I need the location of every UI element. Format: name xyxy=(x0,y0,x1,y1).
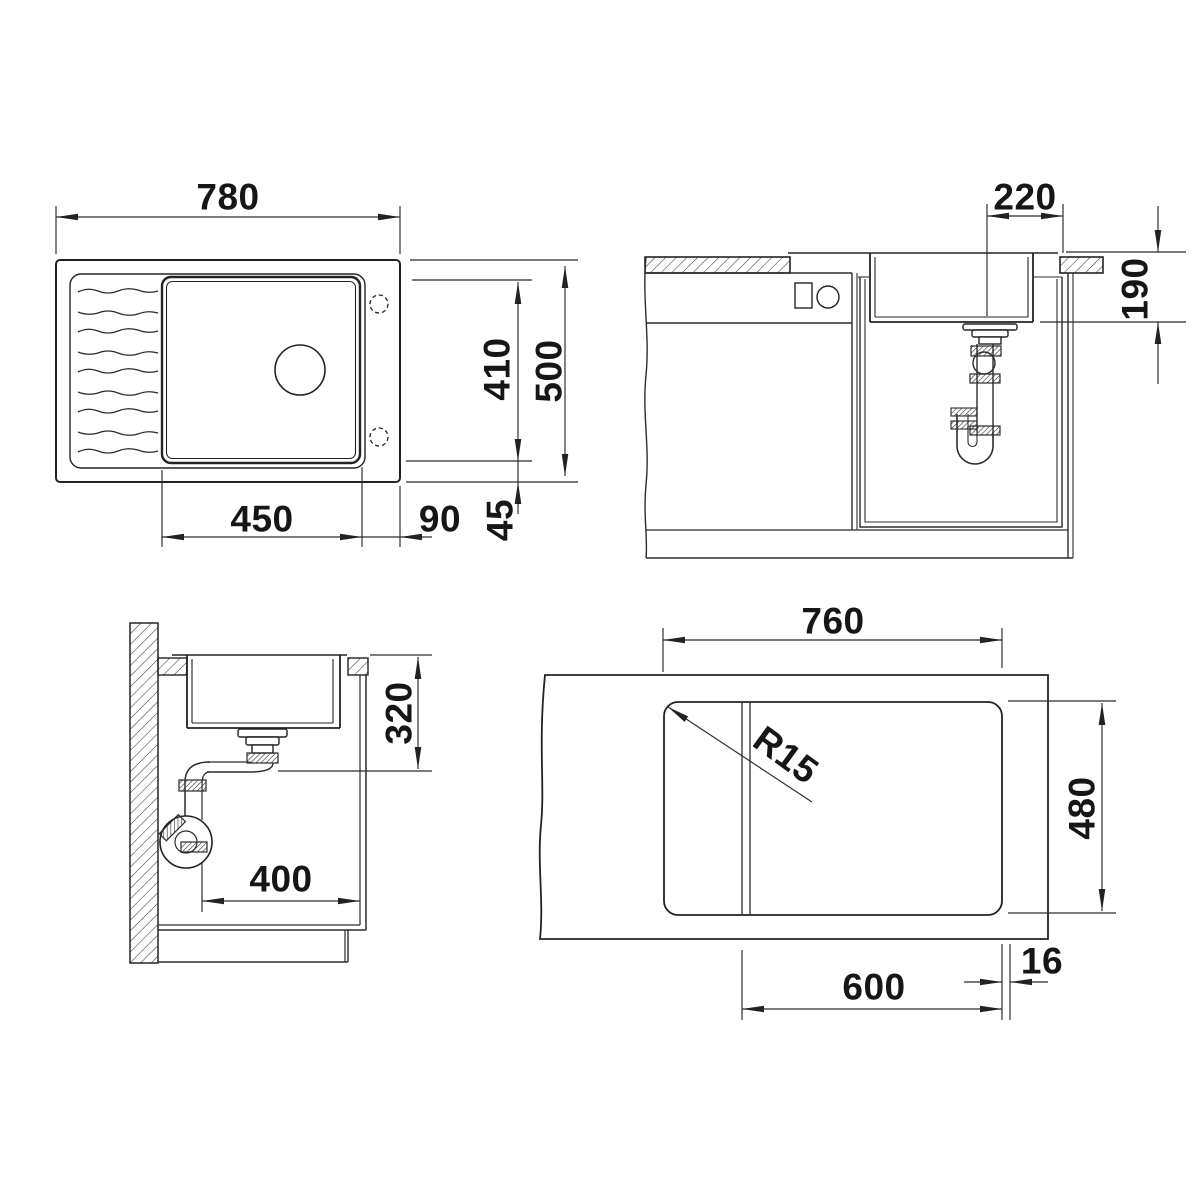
technical-drawing-page: 780 500 410 450 90 45 xyxy=(0,0,1200,1200)
appliance-knob xyxy=(817,286,839,308)
dim-label-760: 760 xyxy=(801,601,864,642)
view-side-section: 320 400 xyxy=(130,623,432,963)
dim-label-410: 410 xyxy=(477,337,518,400)
dim-label-780: 780 xyxy=(196,177,259,218)
counter-section-left xyxy=(158,658,187,675)
side-dimensions: 320 400 xyxy=(202,655,432,912)
dim-label-16: 16 xyxy=(1021,941,1063,982)
appliance-control xyxy=(795,283,812,308)
bowl-outline xyxy=(162,277,360,463)
dim-label-450: 450 xyxy=(230,499,293,540)
counter-section-right xyxy=(348,658,368,675)
front-dimensions: 220 190 xyxy=(987,177,1186,385)
drain-hole xyxy=(275,345,325,395)
bowl-section xyxy=(870,253,1033,322)
dim-label-45: 45 xyxy=(480,499,521,541)
sink-rim xyxy=(70,274,365,468)
countertop-outline xyxy=(540,675,1048,939)
sink-technical-drawing: 780 500 410 450 90 45 xyxy=(0,0,1200,1200)
view-cutout-plan: 760 480 600 16 R15 xyxy=(540,601,1116,1021)
countertop-right-section xyxy=(1060,257,1103,273)
wall-section xyxy=(130,623,158,963)
bowl-side-section xyxy=(187,655,340,728)
bowl-inner-line xyxy=(167,282,356,459)
dim-label-500: 500 xyxy=(529,339,570,402)
tap-hole-top xyxy=(370,295,388,313)
dim-label-600: 600 xyxy=(842,967,905,1008)
dim-label-90: 90 xyxy=(419,499,461,540)
drain-plumbing-side xyxy=(159,729,287,868)
dim-label-190: 190 xyxy=(1115,257,1156,320)
dim-label-220: 220 xyxy=(993,177,1056,218)
drain-plumbing-front xyxy=(951,324,1017,464)
view-plan-top: 780 500 410 450 90 45 xyxy=(56,177,578,548)
base-cabinet-front xyxy=(645,257,1073,558)
dim-label-480: 480 xyxy=(1062,776,1103,839)
drainboard-ridges xyxy=(78,289,158,453)
dim-label-400: 400 xyxy=(249,859,312,900)
countertop-left-section xyxy=(645,257,790,273)
cabinet-break-edge xyxy=(645,257,647,558)
view-front-section: 220 190 xyxy=(645,177,1186,559)
tap-hole-bottom xyxy=(370,428,388,446)
plan-dimensions: 780 500 410 450 90 45 xyxy=(56,177,578,548)
dim-label-320: 320 xyxy=(379,681,420,744)
